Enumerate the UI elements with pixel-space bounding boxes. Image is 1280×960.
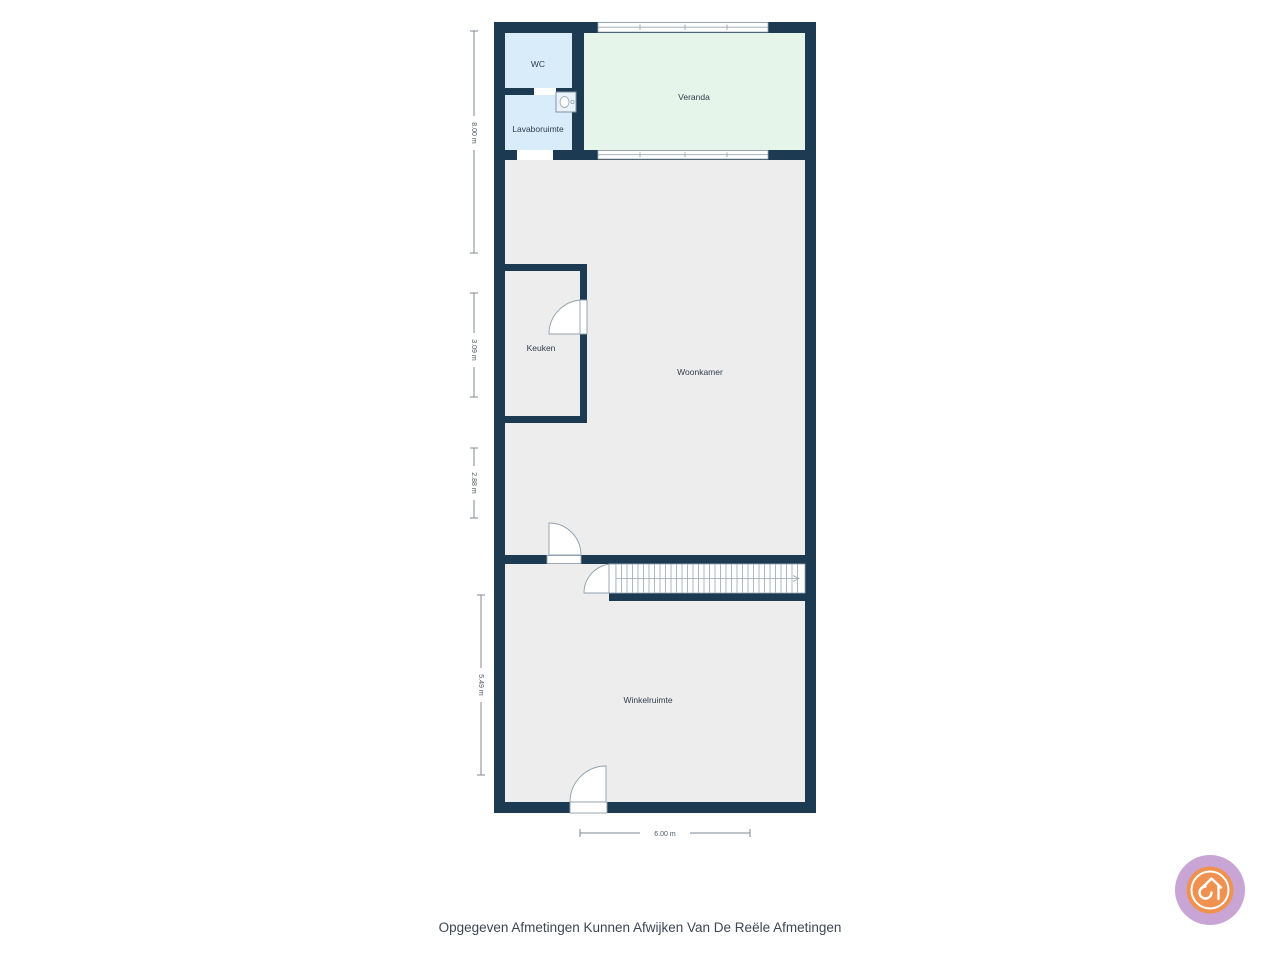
svg-text:3.09 m: 3.09 m <box>470 339 477 361</box>
svg-text:2.88 m: 2.88 m <box>470 472 477 494</box>
veranda-window-top <box>598 23 768 33</box>
wall-wc-column-right <box>572 22 584 160</box>
svg-text:6.00 m: 6.00 m <box>654 831 676 838</box>
wall-keuken-top <box>494 264 587 271</box>
logo <box>1175 855 1245 925</box>
disclaimer-text: Opgegeven Afmetingen Kunnen Afwijken Van… <box>439 920 842 935</box>
label-veranda: Veranda <box>678 92 710 102</box>
wall-right <box>805 22 816 813</box>
label-woonkamer: Woonkamer <box>677 367 723 377</box>
dimension-bottom-width: 6.00 m <box>580 829 750 838</box>
floorplan-page: WC Lavaboruimte Veranda Keuken Woonkamer… <box>0 0 1280 960</box>
floor-plan: WC Lavaboruimte Veranda Keuken Woonkamer… <box>0 0 1280 960</box>
veranda-window-bottom <box>598 151 768 160</box>
logo-inner-disc <box>1187 867 1234 914</box>
wall-bottom <box>494 802 816 813</box>
label-wc: WC <box>531 59 545 69</box>
label-winkelruimte: Winkelruimte <box>623 695 672 705</box>
label-lavaboruimte: Lavaboruimte <box>512 124 564 134</box>
dimension-left-bottom: 5.49 m <box>477 595 485 775</box>
opening-wc-door <box>534 88 556 95</box>
svg-text:8.00 m: 8.00 m <box>470 122 477 144</box>
dimension-left-middle: 2.88 m <box>470 448 478 518</box>
sink-icon <box>556 92 576 112</box>
staircase <box>616 564 805 593</box>
wall-woonkamer-winkel <box>494 555 816 564</box>
opening-lavabo-door <box>517 150 553 160</box>
label-keuken: Keuken <box>527 343 556 353</box>
wall-stairs-bottom <box>609 593 816 601</box>
svg-text:5.49 m: 5.49 m <box>477 674 484 696</box>
dimension-left-keuken: 3.09 m <box>470 293 478 397</box>
wall-keuken-right <box>580 264 587 423</box>
wall-keuken-bottom <box>494 416 587 423</box>
room-woonkamer <box>505 160 805 555</box>
dimension-left-top: 8.00 m <box>470 31 478 253</box>
